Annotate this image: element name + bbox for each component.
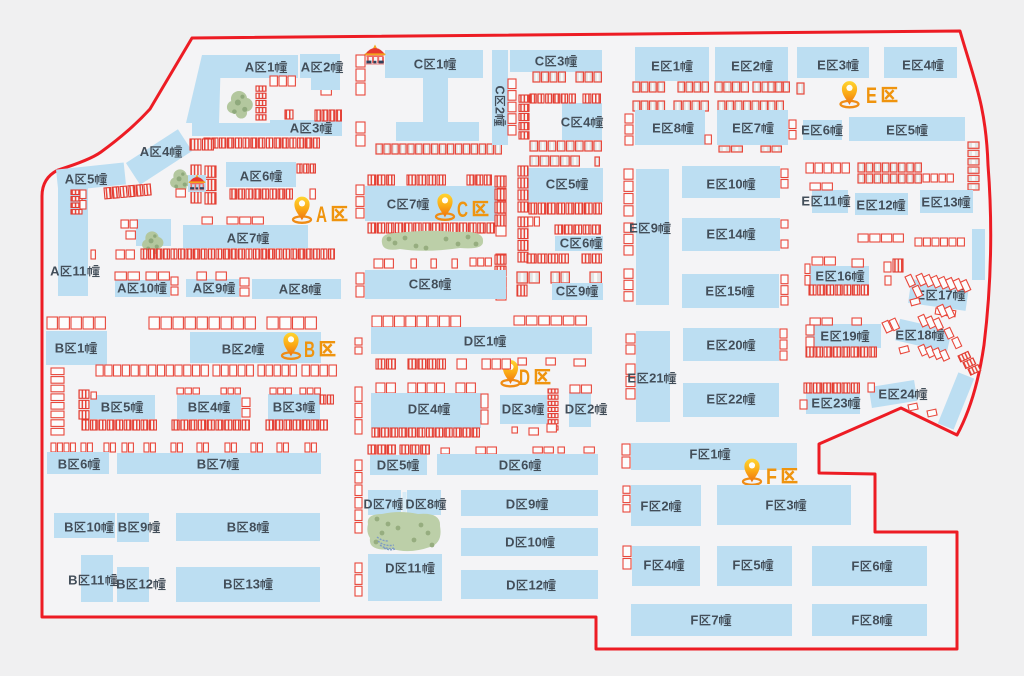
svg-text:8: 8 (301, 282, 308, 297)
svg-text:A: A (117, 281, 127, 296)
svg-text:E: E (706, 392, 715, 407)
svg-text:9: 9 (578, 284, 585, 299)
svg-text:C: C (387, 197, 397, 212)
svg-text:B: B (68, 573, 77, 588)
svg-text:2: 2 (493, 107, 507, 114)
svg-text:1: 1 (486, 334, 493, 349)
svg-text:E: E (651, 59, 660, 74)
svg-text:6: 6 (582, 236, 589, 251)
svg-text:B: B (116, 577, 125, 592)
svg-text:5: 5 (568, 177, 575, 192)
svg-text:4: 4 (583, 115, 591, 130)
svg-text:C: C (535, 54, 545, 69)
svg-text:C: C (546, 177, 556, 192)
svg-text:15: 15 (727, 284, 741, 299)
svg-text:12: 12 (878, 198, 892, 213)
svg-text:19: 19 (842, 329, 856, 344)
svg-text:C: C (561, 115, 571, 130)
svg-text:F: F (690, 613, 698, 628)
svg-text:E: E (817, 58, 826, 73)
svg-text:2: 2 (244, 342, 251, 357)
svg-text:B: B (188, 400, 197, 415)
svg-text:A: A (279, 282, 289, 297)
svg-text:C: C (493, 86, 507, 95)
svg-text:E: E (811, 396, 820, 411)
svg-text:A: A (245, 60, 255, 75)
svg-text:E: E (732, 121, 741, 136)
svg-text:6: 6 (872, 559, 879, 574)
svg-text:D: D (506, 578, 515, 593)
svg-text:2: 2 (753, 59, 760, 74)
svg-text:10: 10 (140, 281, 154, 296)
svg-text:3: 3 (786, 498, 793, 513)
svg-text:1: 1 (77, 341, 84, 356)
svg-text:D: D (519, 365, 530, 390)
svg-text:7: 7 (249, 231, 256, 246)
svg-text:5: 5 (908, 123, 915, 138)
svg-text:A: A (227, 231, 237, 246)
svg-text:7: 7 (385, 498, 392, 512)
svg-text:A: A (193, 281, 203, 296)
svg-text:F: F (765, 498, 773, 513)
svg-text:3: 3 (524, 402, 531, 417)
svg-text:D: D (506, 497, 515, 512)
svg-text:9: 9 (528, 497, 535, 512)
svg-text:B: B (101, 400, 110, 415)
svg-text:E: E (801, 194, 810, 209)
svg-text:11: 11 (91, 573, 105, 588)
svg-text:24: 24 (900, 387, 915, 402)
svg-text:D: D (464, 334, 473, 349)
svg-text:3: 3 (312, 121, 319, 136)
svg-text:11: 11 (823, 194, 837, 209)
svg-text:10: 10 (528, 535, 542, 550)
svg-text:13: 13 (943, 195, 957, 210)
svg-text:23: 23 (833, 396, 847, 411)
svg-text:E: E (706, 227, 715, 242)
svg-text:11: 11 (73, 264, 87, 279)
svg-text:6: 6 (262, 169, 269, 184)
svg-text:E: E (705, 284, 714, 299)
svg-text:E: E (731, 59, 740, 74)
svg-text:E: E (815, 269, 824, 284)
svg-text:D: D (406, 498, 415, 512)
svg-text:9: 9 (215, 281, 222, 296)
svg-text:E: E (652, 121, 661, 136)
svg-text:D: D (364, 498, 373, 512)
svg-text:9: 9 (140, 520, 147, 535)
svg-text:1: 1 (267, 60, 274, 75)
svg-text:D: D (505, 535, 514, 550)
svg-text:B: B (222, 342, 231, 357)
svg-text:C: C (560, 236, 570, 251)
svg-text:A: A (316, 202, 327, 227)
svg-text:E: E (921, 195, 930, 210)
svg-text:2: 2 (587, 402, 594, 417)
svg-text:B: B (64, 520, 73, 535)
svg-text:20: 20 (728, 338, 742, 353)
svg-text:7: 7 (219, 457, 226, 472)
svg-text:B: B (118, 520, 127, 535)
svg-text:E: E (866, 83, 877, 108)
svg-text:12: 12 (529, 578, 543, 593)
svg-text:8: 8 (674, 121, 681, 136)
svg-text:A: A (301, 60, 311, 75)
svg-text:D: D (565, 402, 574, 417)
svg-text:B: B (58, 457, 67, 472)
svg-text:10: 10 (87, 520, 101, 535)
svg-text:E: E (801, 123, 810, 138)
svg-text:E: E (856, 198, 865, 213)
svg-text:F: F (643, 558, 651, 573)
svg-text:5: 5 (87, 172, 94, 187)
svg-text:B: B (223, 577, 232, 592)
svg-text:B: B (227, 520, 236, 535)
svg-text:F: F (689, 447, 697, 462)
svg-text:2: 2 (661, 499, 668, 514)
svg-text:D: D (385, 561, 394, 576)
svg-text:E: E (706, 177, 715, 192)
svg-text:D: D (499, 458, 508, 473)
svg-text:2: 2 (323, 60, 330, 75)
svg-text:B: B (273, 400, 282, 415)
svg-text:F: F (732, 558, 740, 573)
svg-text:A: A (65, 172, 75, 187)
svg-text:4: 4 (430, 402, 438, 417)
svg-text:5: 5 (753, 558, 760, 573)
svg-text:8: 8 (249, 520, 256, 535)
svg-text:E: E (629, 221, 638, 236)
svg-text:8: 8 (872, 613, 879, 628)
svg-text:A: A (50, 264, 60, 279)
svg-text:F: F (640, 499, 648, 514)
svg-text:C: C (556, 284, 566, 299)
svg-text:4: 4 (924, 58, 932, 73)
svg-text:4: 4 (210, 400, 218, 415)
svg-text:E: E (878, 387, 887, 402)
svg-text:5: 5 (399, 458, 406, 473)
svg-text:3: 3 (557, 54, 564, 69)
svg-text:8: 8 (427, 498, 434, 512)
svg-text:C: C (457, 197, 468, 222)
svg-text:B: B (55, 341, 64, 356)
svg-text:14: 14 (728, 227, 743, 242)
svg-text:C: C (414, 57, 424, 72)
svg-text:F: F (851, 559, 859, 574)
svg-text:3: 3 (295, 400, 302, 415)
svg-text:D: D (408, 402, 417, 417)
svg-text:B: B (304, 337, 315, 362)
svg-text:7: 7 (409, 197, 416, 212)
svg-text:21: 21 (649, 371, 663, 386)
svg-text:A: A (140, 144, 150, 159)
svg-text:E: E (706, 338, 715, 353)
svg-text:7: 7 (711, 613, 718, 628)
svg-text:A: A (240, 169, 250, 184)
svg-text:4: 4 (664, 558, 672, 573)
svg-text:10: 10 (728, 177, 742, 192)
svg-text:1: 1 (673, 59, 680, 74)
svg-text:4: 4 (162, 144, 170, 159)
svg-text:22: 22 (728, 392, 742, 407)
svg-text:11: 11 (408, 561, 422, 576)
svg-text:E: E (627, 371, 636, 386)
svg-text:E: E (886, 123, 895, 138)
svg-text:16: 16 (837, 269, 851, 284)
svg-text:1: 1 (710, 447, 717, 462)
svg-text:D: D (377, 458, 386, 473)
svg-text:D: D (502, 402, 511, 417)
svg-text:E: E (820, 329, 829, 344)
svg-text:6: 6 (521, 458, 528, 473)
svg-text:3: 3 (839, 58, 846, 73)
svg-text:B: B (197, 457, 206, 472)
svg-text:E: E (902, 58, 911, 73)
svg-text:6: 6 (80, 457, 87, 472)
svg-text:18: 18 (917, 328, 931, 343)
svg-text:7: 7 (754, 121, 761, 136)
svg-text:13: 13 (246, 577, 260, 592)
svg-text:12: 12 (139, 577, 153, 592)
svg-text:A: A (290, 121, 300, 136)
svg-text:1: 1 (436, 57, 443, 72)
svg-text:F: F (851, 613, 859, 628)
svg-text:9: 9 (651, 221, 658, 236)
svg-text:5: 5 (123, 400, 130, 415)
svg-text:6: 6 (823, 123, 830, 138)
svg-text:8: 8 (431, 277, 438, 292)
svg-text:C: C (409, 277, 419, 292)
